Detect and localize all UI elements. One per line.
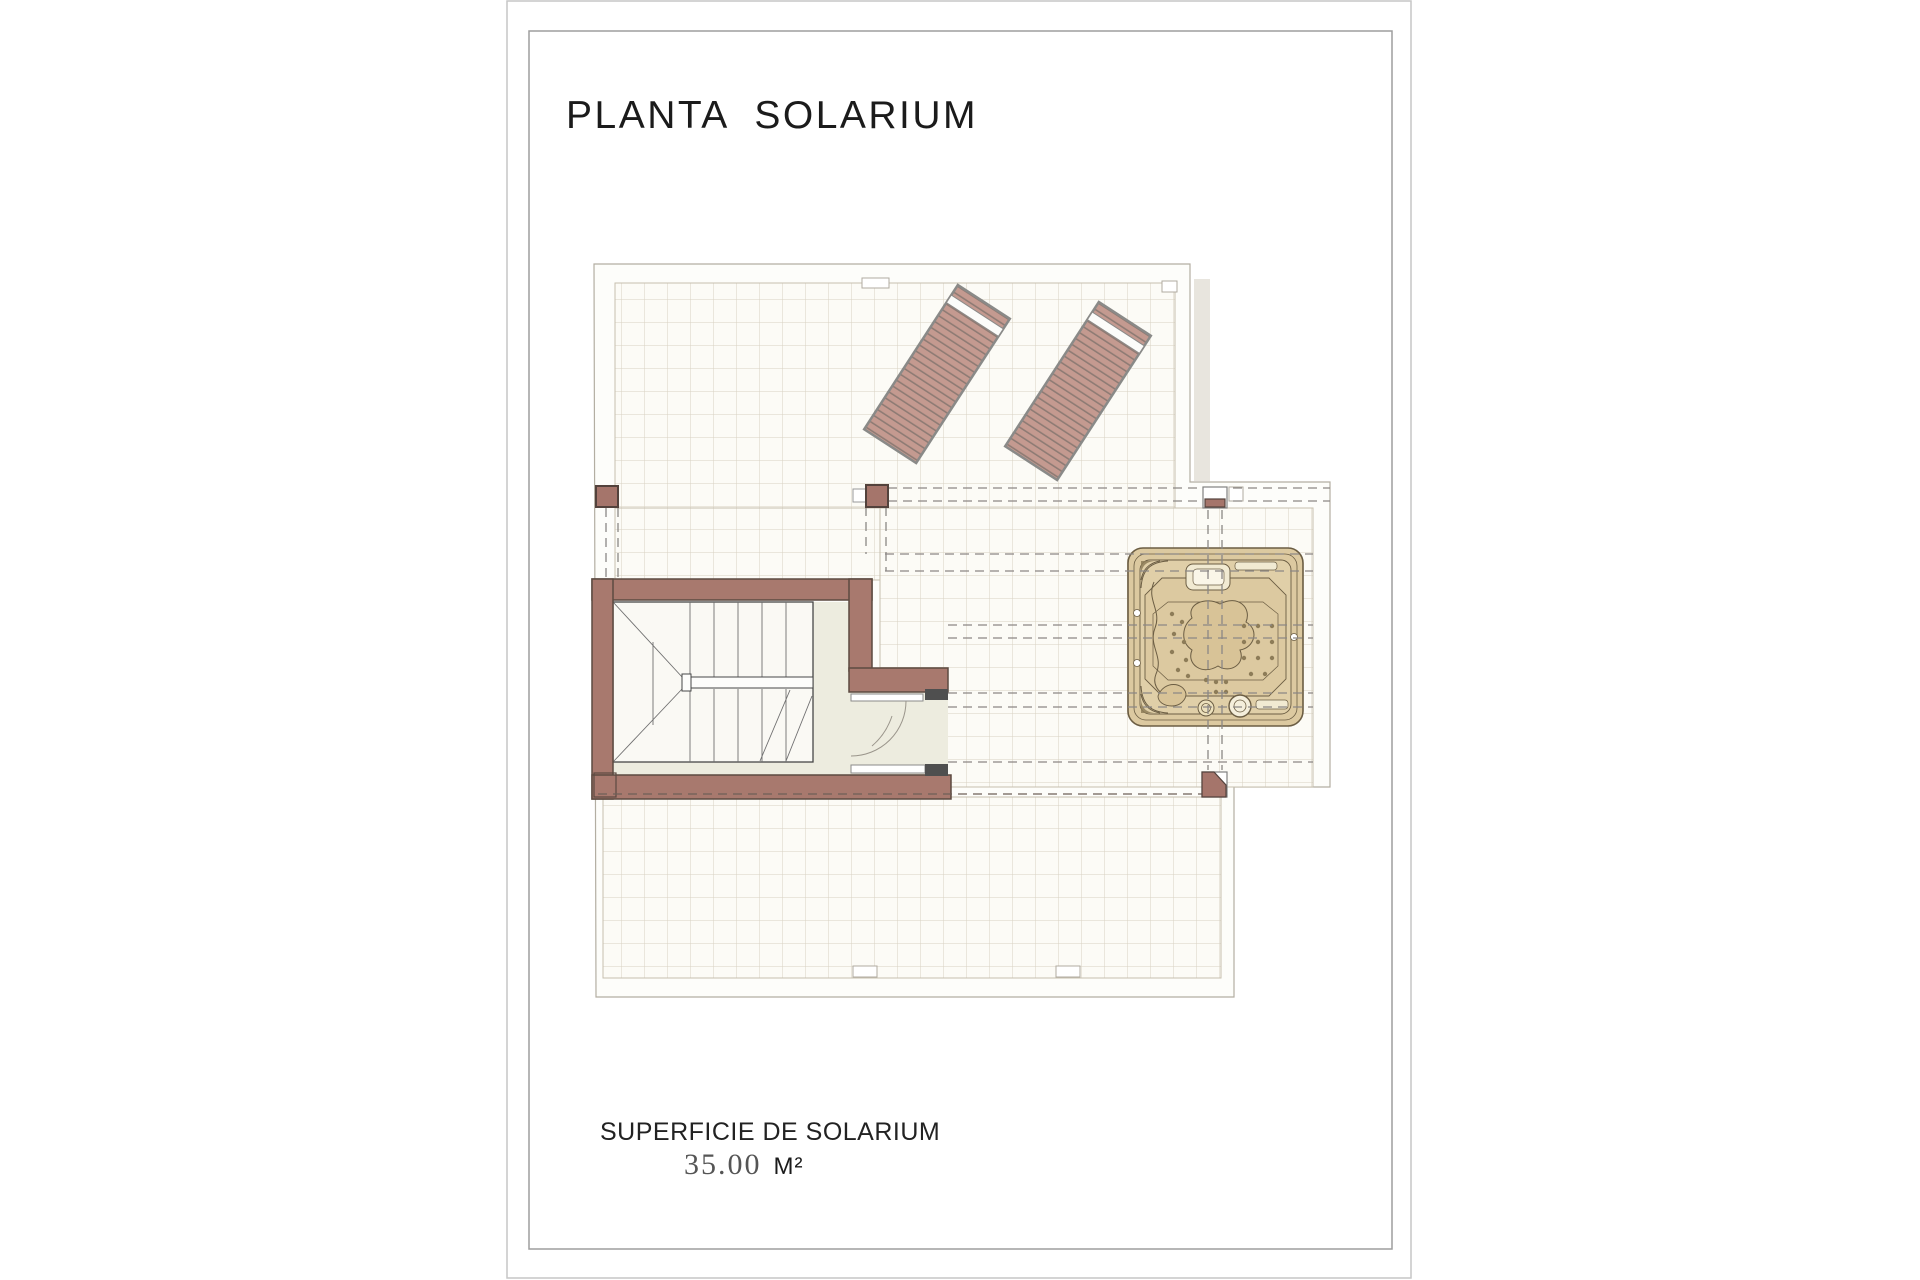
surface-area-number: 35.00 bbox=[684, 1148, 762, 1182]
jacuzzi-top-bar bbox=[1235, 562, 1277, 570]
wall-left bbox=[592, 579, 613, 799]
door-header-bottom bbox=[925, 764, 948, 776]
surface-area-label: SUPERFICIE DE SOLARIUM bbox=[600, 1118, 940, 1147]
post-anchor-tick bbox=[853, 489, 866, 502]
left-mid-grid bbox=[615, 508, 880, 580]
lower-terrace-grid bbox=[603, 797, 1221, 978]
door-leaf-bottom bbox=[851, 765, 925, 773]
parapet-strip bbox=[1194, 279, 1210, 481]
post-top-right bbox=[1203, 487, 1227, 508]
wall-bottom bbox=[592, 775, 951, 799]
jacuzzi bbox=[1128, 548, 1303, 726]
wall-top bbox=[592, 579, 872, 600]
post-bottom-right bbox=[1202, 772, 1227, 797]
surface-area-value: 35.00 M² bbox=[684, 1148, 803, 1182]
plan-title: PLANTA SOLARIUM bbox=[566, 94, 978, 138]
wall-extension bbox=[849, 668, 948, 692]
stair-newel bbox=[682, 674, 691, 691]
post-top-left bbox=[596, 486, 618, 507]
door-header-top bbox=[925, 689, 948, 700]
screenshot-stage: PLANTA SOLARIUM SUPERFICIE DE SOLARIUM 3… bbox=[0, 0, 1920, 1280]
staircase bbox=[613, 602, 813, 762]
surface-area-unit: M² bbox=[774, 1153, 804, 1181]
wall-right bbox=[849, 579, 872, 671]
floor-plan-drawing bbox=[0, 0, 1920, 1280]
stair-handrail bbox=[687, 677, 813, 688]
door-leaf-top bbox=[851, 694, 923, 701]
post-top-middle bbox=[866, 485, 888, 507]
